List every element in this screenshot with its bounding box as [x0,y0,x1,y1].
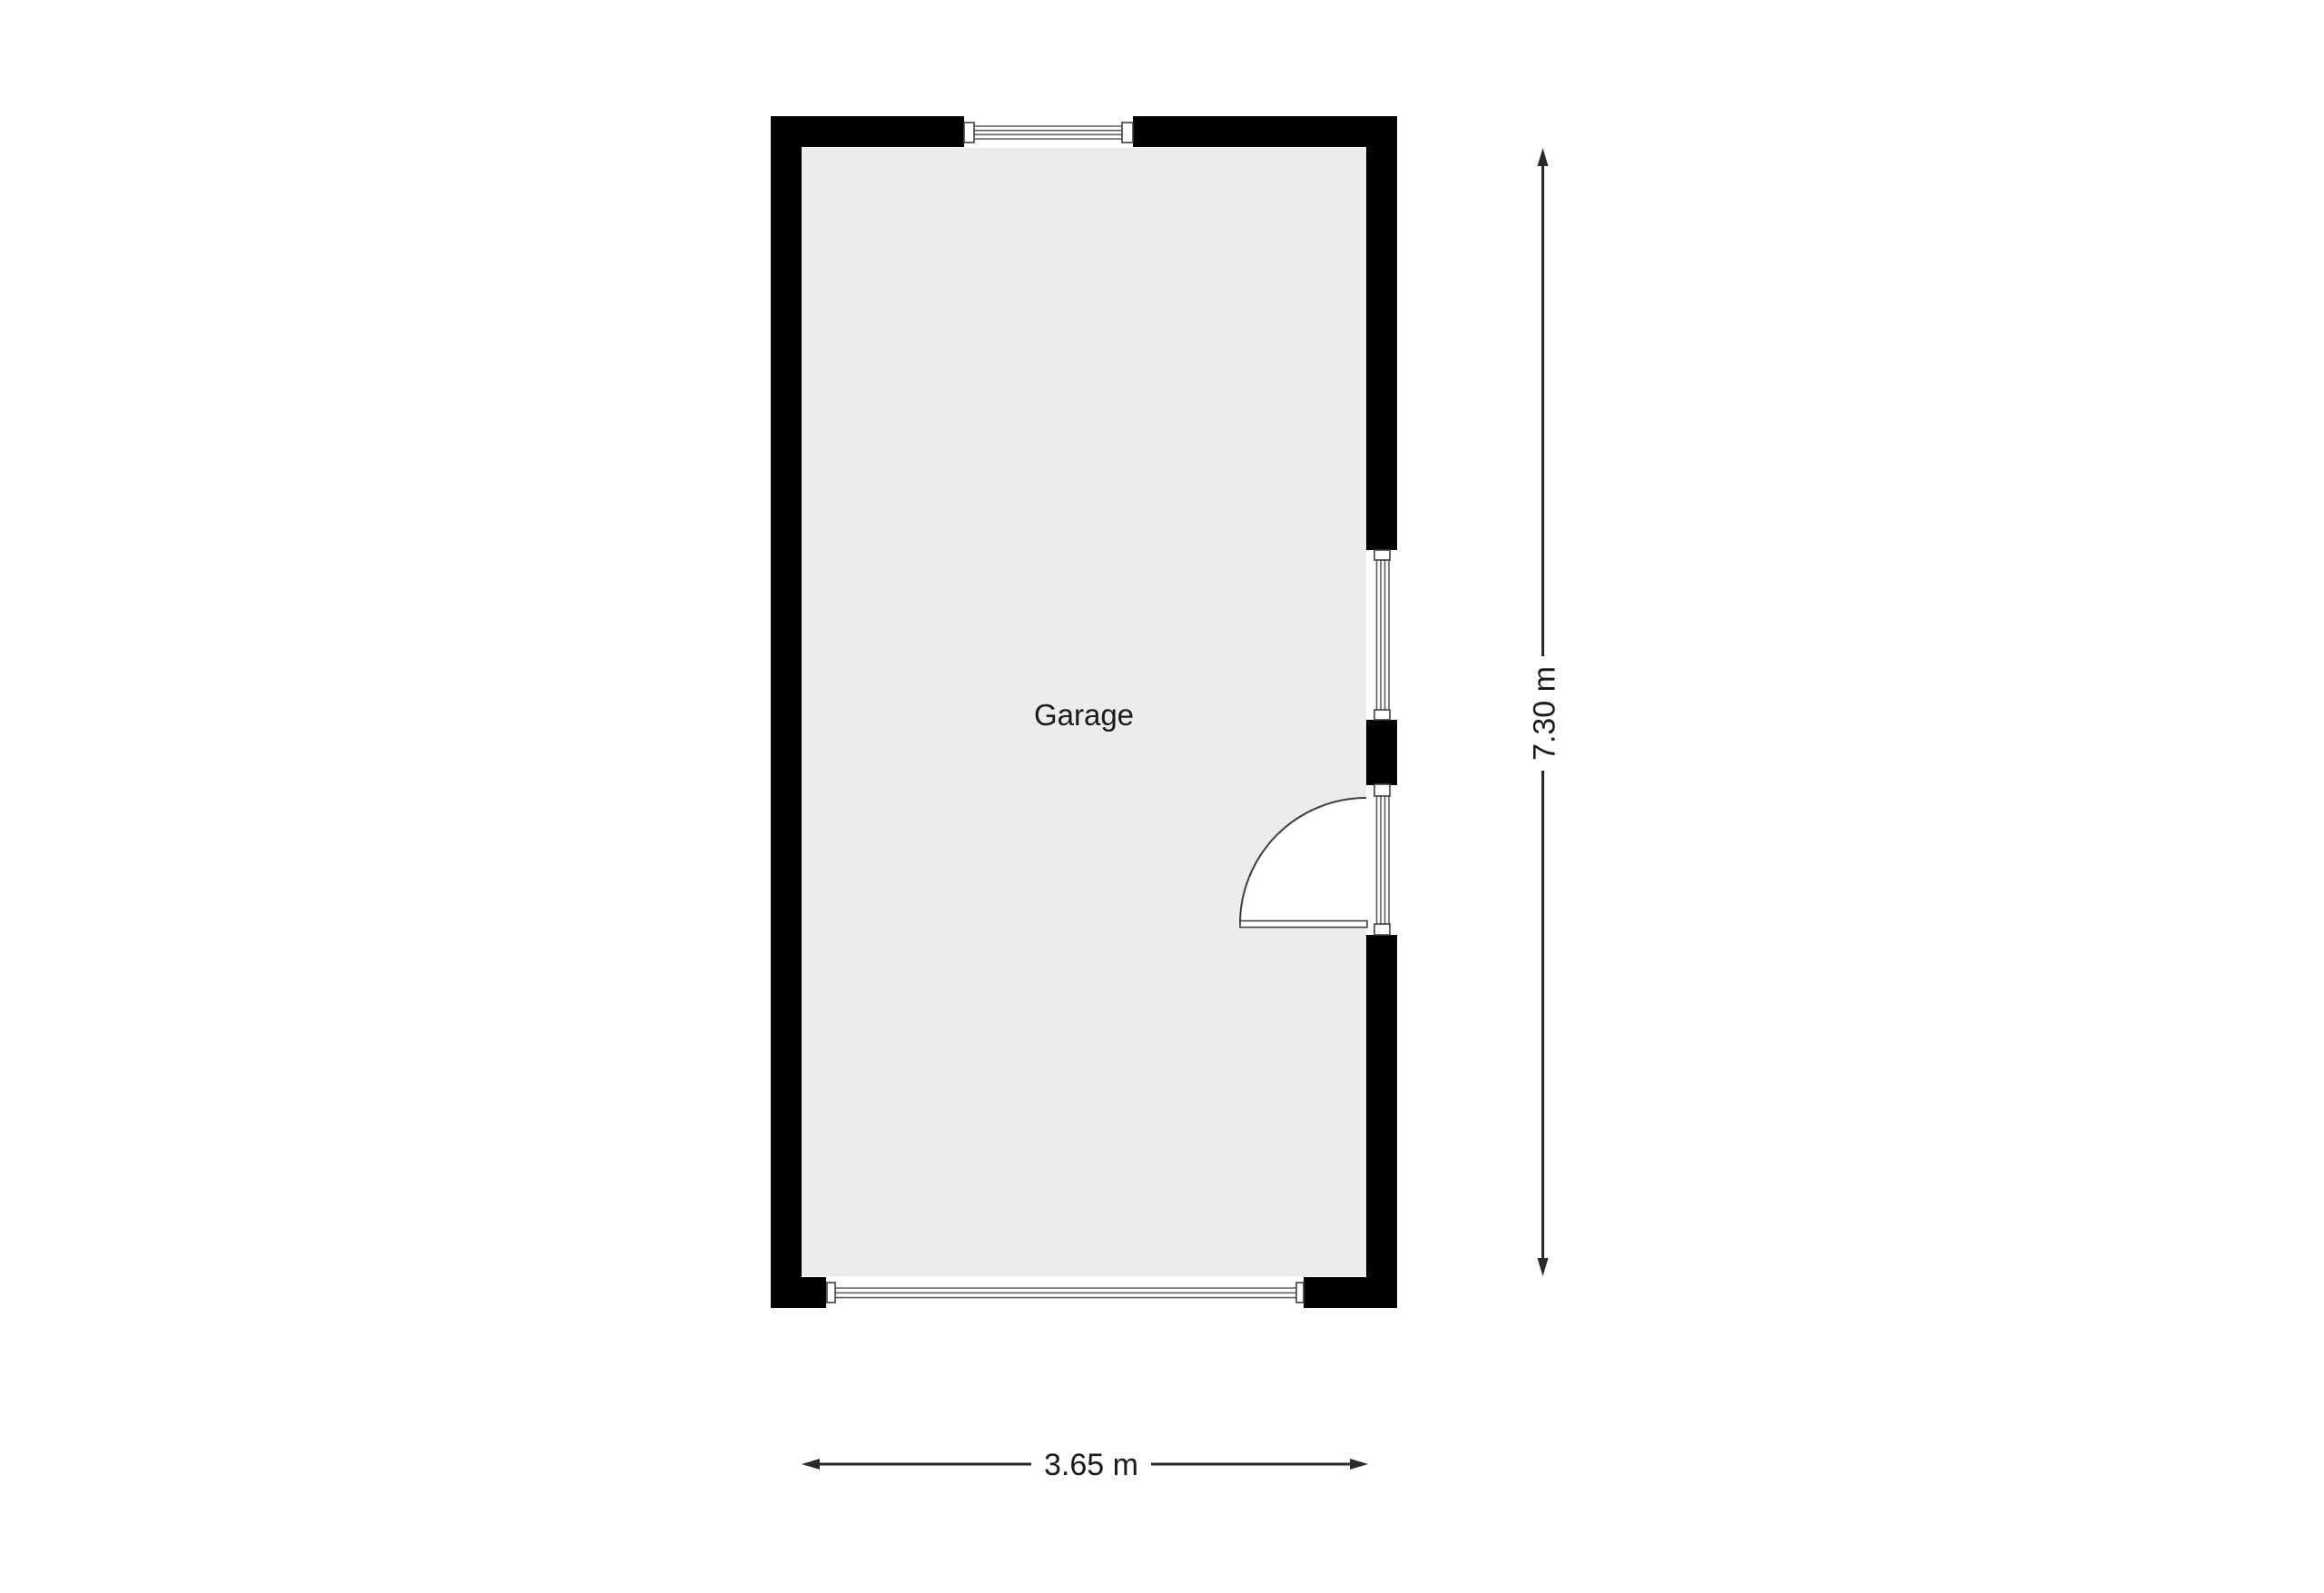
floorplan-canvas: 7.30 m 3.65 m Garage [0,0,2324,1593]
dimension-horizontal: 3.65 m [802,1448,1368,1482]
door-frame [1374,784,1390,796]
wall-right-upper-segment [1366,116,1397,550]
wall-left [771,116,802,1308]
window-frame [964,123,974,143]
arrow-right-icon [1350,1459,1368,1470]
window-top [964,123,1133,143]
dimension-height-label: 7.30 m [1528,666,1562,761]
door-leaf [1240,921,1367,928]
dimension-vertical: 7.30 m [1528,148,1562,1276]
wall-bottom-right-stub [1304,1277,1397,1308]
wall-right-middle-segment [1366,720,1397,785]
window-frame [1374,710,1390,720]
wall-top-right-segment [1133,116,1397,147]
arrow-up-icon [1538,148,1549,166]
wall-right-lower-segment [1366,935,1397,1308]
garage-door-frame [1296,1283,1304,1303]
room-label: Garage [1034,698,1134,732]
door-frame [1374,924,1390,935]
garage-door-bottom [827,1283,1304,1303]
arrow-left-icon [802,1459,820,1470]
window-frame [1374,550,1390,560]
window-frame [1122,123,1133,143]
dimension-width-label: 3.65 m [1044,1448,1138,1482]
window-right [1374,550,1390,720]
floorplan-page: 7.30 m 3.65 m Garage [0,0,2324,1593]
wall-bottom-left-stub [771,1277,826,1308]
wall-top-left-segment [771,116,964,147]
garage-door-frame [827,1283,835,1303]
arrow-down-icon [1538,1258,1549,1276]
